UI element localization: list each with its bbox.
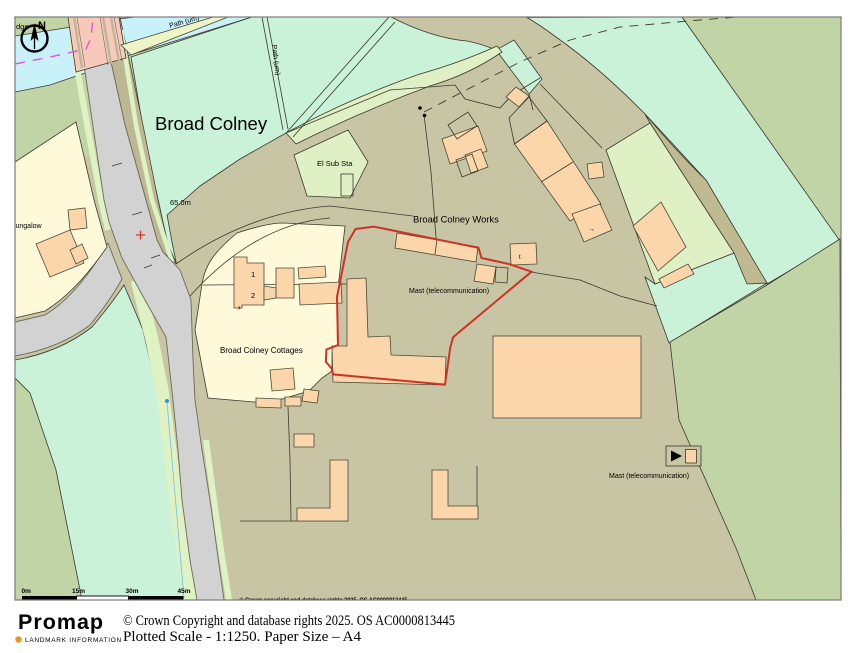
svg-text:Broad Colney Cottages: Broad Colney Cottages	[220, 346, 303, 355]
svg-text:→: →	[588, 226, 595, 233]
svg-text:N: N	[38, 20, 46, 32]
svg-text:Promap: Promap	[18, 610, 104, 634]
svg-text:65.0m: 65.0m	[170, 198, 191, 207]
svg-text:Broad Colney Works: Broad Colney Works	[413, 214, 499, 225]
svg-text:Mast (telecommunication): Mast (telecommunication)	[409, 288, 489, 295]
svg-text:0m: 0m	[22, 588, 32, 595]
svg-text:El Sub Sta: El Sub Sta	[317, 159, 353, 168]
svg-text:Mast (telecommunication): Mast (telecommunication)	[609, 473, 689, 480]
svg-text:15m: 15m	[72, 588, 85, 595]
svg-text:© Crown Copyright and database: © Crown Copyright and database rights 20…	[123, 613, 455, 629]
svg-text:30m: 30m	[126, 588, 139, 595]
svg-text:ungalow: ungalow	[16, 223, 43, 230]
svg-text:Plotted Scale - 1:1250. Paper: Plotted Scale - 1:1250. Paper Size – A4	[123, 629, 361, 645]
svg-text:LANDMARK INFORMATION: LANDMARK INFORMATION	[25, 637, 122, 644]
svg-text:1: 1	[251, 270, 255, 279]
svg-text:2: 2	[251, 291, 255, 300]
svg-text:45m: 45m	[178, 588, 191, 595]
svg-text:›: ›	[238, 303, 241, 312]
svg-text:Broad Colney: Broad Colney	[155, 113, 268, 134]
